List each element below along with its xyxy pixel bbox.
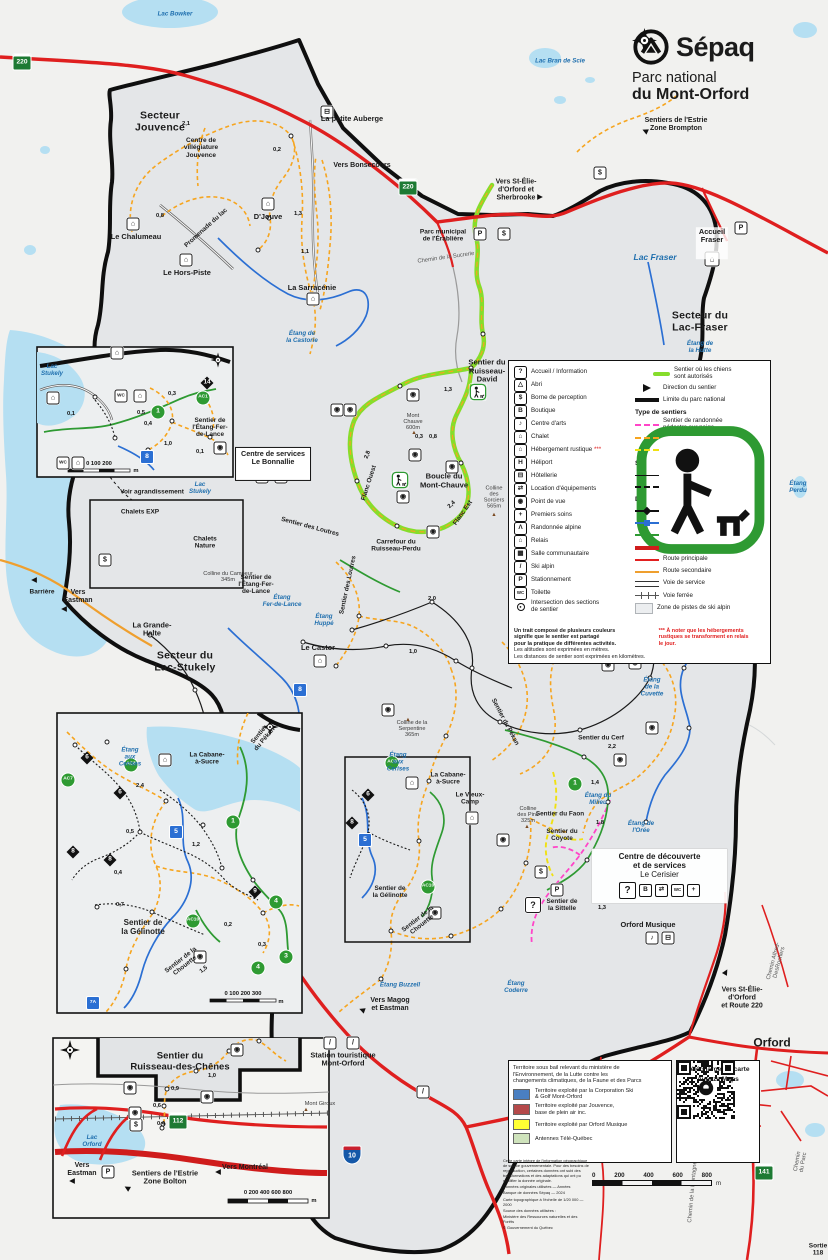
park-limit-line <box>635 398 659 402</box>
map-canvas: ⊟⌂⌂⌂⌂$$$$$PPPP?⌂⌂⌂⌂⌂⌂⌂WC⌂WC⌂WC⌂///♪⊟◉◉◉◉… <box>0 0 828 1260</box>
intersection-icon: ● <box>517 603 525 611</box>
territory-item: Territoire exploité par la Corporation S… <box>513 1088 667 1101</box>
map-header: Sépaq Parc national du Mont-Orford <box>632 28 792 104</box>
legend-facilities: ?Accueil / Information△Abri$Borne de per… <box>514 366 631 613</box>
park-title-line2: du Mont-Orford <box>632 86 792 104</box>
salle-communautaire-icon: ▦ <box>514 548 527 561</box>
territory-item: Territoire exploité par Orford Musique <box>513 1119 667 1130</box>
territory-swatch <box>513 1119 530 1130</box>
boutique-icon: B <box>514 405 527 418</box>
cerisier-services-icons: ?B⇄WC+ <box>594 882 725 899</box>
main-scalebar: 0200400600800 m <box>592 1172 712 1186</box>
territory-swatch <box>513 1133 530 1144</box>
abri-icon: △ <box>514 379 527 392</box>
legend-item: △Abri <box>514 379 631 392</box>
cerisier-line3: Le Cerisier <box>594 870 725 879</box>
legend-item: HHéliport <box>514 457 631 470</box>
legend-item: ?Accueil / Information <box>514 366 631 379</box>
brand-name: Sépaq <box>676 32 755 63</box>
stationnement-icon: P <box>514 574 527 587</box>
borne-de-perception-icon: $ <box>514 392 527 405</box>
legend-item: ●Intersection des sections de sentier <box>514 600 631 613</box>
legend-item: ▦Salle communautaire <box>514 548 631 561</box>
hotellerie-icon: ⊟ <box>514 470 527 483</box>
heliport-icon: H <box>514 457 527 470</box>
legend-item: ⌂Hébergement rustique *** <box>514 444 631 457</box>
premiers-soins-icon: + <box>687 884 700 897</box>
location-equipements-icon: ⇄ <box>514 483 527 496</box>
legend-item: +Premiers soins <box>514 509 631 522</box>
relais-icon: ⌂ <box>514 535 527 548</box>
dogs-trail-line <box>653 372 670 376</box>
scalebar-bar <box>592 1180 712 1186</box>
scalebar-unit: m <box>716 1181 721 1187</box>
legend-item: $Borne de perception <box>514 392 631 405</box>
hebergement-rustique-icon: ⌂ <box>514 444 527 457</box>
cerisier-callout: Centre de découverte et de services Le C… <box>592 849 727 903</box>
territory-item: Territoire exploité par Jouvence, base d… <box>513 1103 667 1116</box>
legend-item: ♪Centre d'arts <box>514 418 631 431</box>
legend-item: ⌂Chalet <box>514 431 631 444</box>
legend-item: PStationnement <box>514 574 631 587</box>
toilette-icon: WC <box>514 587 527 600</box>
map-credits: Cette carte intègre de l'information géo… <box>503 1158 589 1231</box>
ski-alpin-icon: / <box>514 561 527 574</box>
accueil-information-icon: ? <box>514 366 527 379</box>
randonnee-alpine-icon: Λ <box>514 522 527 535</box>
boutique-icon: B <box>639 884 652 897</box>
territory-legend: Territoire sous bail relevant du ministè… <box>508 1060 672 1163</box>
legend-item: BBoutique <box>514 405 631 418</box>
toilette-icon: WC <box>671 884 684 897</box>
premiers-soins-icon: + <box>514 509 527 522</box>
compass-icon <box>767 35 792 60</box>
qr-code <box>677 1061 735 1119</box>
territory-title: Territoire sous bail relevant du ministè… <box>513 1065 667 1085</box>
legend-item: ΛRandonnée alpine <box>514 522 631 535</box>
legend-trails: Sentier où les chiens sont autorisés Dir… <box>635 366 766 614</box>
park-title-line1: Parc national <box>632 70 792 86</box>
territory-swatch <box>513 1089 530 1100</box>
legend-note-shared: Un trait composé de plusieurs couleurs s… <box>514 628 654 660</box>
legend-item: ⊟Hôtellerie <box>514 470 631 483</box>
legend-note-rustique: *** À noter que les hébergements rustiqu… <box>659 628 766 660</box>
location-equipements-icon: ⇄ <box>655 884 668 897</box>
legend-item: ⇄Location d'équipements <box>514 483 631 496</box>
centre-darts-icon: ♪ <box>514 418 527 431</box>
legend-item: ◉Point de vue <box>514 496 631 509</box>
legend-item: /Ski alpin <box>514 561 631 574</box>
territory-item: Antennes Télé-Québec <box>513 1133 667 1144</box>
point-de-vue-icon: ◉ <box>514 496 527 509</box>
accueil-information-icon: ? <box>619 882 636 899</box>
cerisier-line1: Centre de découverte <box>594 852 725 861</box>
cerisier-line2: et de services <box>594 861 725 870</box>
legend-item: ⌂Relais <box>514 535 631 548</box>
avenza-qr-box: Téléchargez la carte Avenza Maps <box>676 1060 760 1163</box>
legend-panel: ?Accueil / Information△Abri$Borne de per… <box>508 360 771 664</box>
territory-swatch <box>513 1104 530 1115</box>
chalet-icon: ⌂ <box>514 431 527 444</box>
dogs-allowed-icon <box>635 367 649 381</box>
